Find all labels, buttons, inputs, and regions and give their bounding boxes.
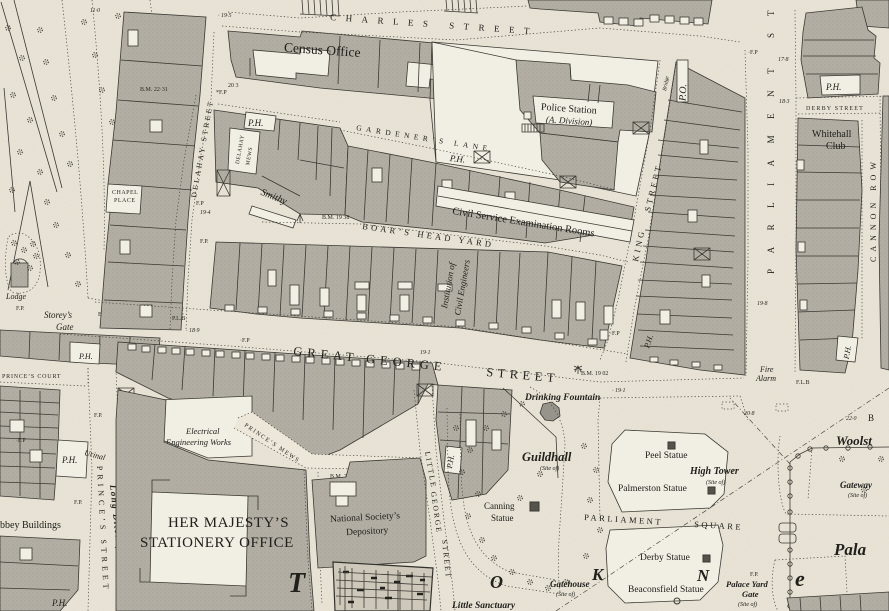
svg-text:Little Sanctuary: Little Sanctuary <box>451 601 516 611</box>
svg-text:P.H.: P.H. <box>247 118 263 128</box>
svg-text:19·1: 19·1 <box>420 350 431 356</box>
svg-text:P.H.: P.H. <box>825 82 841 92</box>
svg-text:19·8: 19·8 <box>757 301 768 307</box>
svg-text:Gatehouse: Gatehouse <box>550 579 590 589</box>
svg-text:B: B <box>868 413 874 423</box>
svg-text:Alarm: Alarm <box>755 374 776 383</box>
svg-text:STATIONERY OFFICE: STATIONERY OFFICE <box>140 535 294 551</box>
svg-text:Club: Club <box>826 141 845 152</box>
svg-text:F.P.: F.P. <box>16 306 25 312</box>
svg-text:11·0: 11·0 <box>90 8 100 14</box>
svg-text:Guildhall: Guildhall <box>522 450 572 464</box>
svg-text:Whitehall: Whitehall <box>812 129 852 140</box>
svg-text:B.M. 19 38: B.M. 19 38 <box>322 215 349 221</box>
svg-text:T: T <box>288 568 307 599</box>
svg-text:PRINCE’S COURT: PRINCE’S COURT <box>2 374 61 380</box>
svg-text:P.H.: P.H. <box>51 598 67 608</box>
svg-text:Statue: Statue <box>491 513 514 523</box>
svg-text:Canning: Canning <box>484 501 515 511</box>
svg-text:P.H.: P.H. <box>448 153 465 165</box>
svg-text:Drinking Fountain: Drinking Fountain <box>524 393 600 403</box>
svg-text:High Tower: High Tower <box>689 466 739 477</box>
svg-text:· 18·9: · 18·9 <box>186 328 200 334</box>
svg-text:·F.P: ·F.P <box>748 50 758 56</box>
svg-text:Storey’s: Storey’s <box>44 310 72 320</box>
svg-text:Palmerston Statue: Palmerston Statue <box>618 484 687 494</box>
svg-text:Gate: Gate <box>56 322 74 332</box>
svg-text:Derby Statue: Derby Statue <box>640 553 690 563</box>
svg-text:F.P.: F.P. <box>94 413 103 419</box>
svg-text:(Site of): (Site of) <box>706 479 725 486</box>
svg-text:B.M. 19 02: B.M. 19 02 <box>581 371 608 377</box>
svg-text:Lodge: Lodge <box>5 292 26 301</box>
svg-text:CHAPEL: CHAPEL <box>112 190 138 196</box>
svg-text:P.O.: P.O. <box>677 84 689 103</box>
svg-text:P.L.B: P.L.B <box>172 316 185 322</box>
svg-text:·F.P: ·F.P <box>610 331 620 337</box>
svg-text:Fire: Fire <box>759 365 774 374</box>
svg-text:O: O <box>490 572 503 592</box>
svg-text:Gate: Gate <box>742 589 759 599</box>
svg-text:DERBY STREET: DERBY STREET <box>806 106 864 112</box>
svg-text:·F.P: ·F.P <box>240 338 250 344</box>
svg-text:18·3: 18·3 <box>779 99 790 105</box>
svg-text:*F.P: *F.P <box>216 90 227 96</box>
svg-text:· 19·5: · 19·5 <box>218 13 232 19</box>
svg-text:F.P: F.P <box>196 201 204 207</box>
svg-text:20 3: 20 3 <box>228 83 239 89</box>
svg-text:HER MAJESTY’S: HER MAJESTY’S <box>168 515 289 531</box>
svg-text:CANNON ROW: CANNON ROW <box>869 157 878 262</box>
svg-text:(Site of): (Site of) <box>540 465 559 472</box>
svg-text:P.H.: P.H. <box>78 352 93 361</box>
svg-text:(Site of): (Site of) <box>738 601 757 608</box>
svg-text:K: K <box>591 565 605 584</box>
svg-text:F.P.: F.P. <box>750 572 759 578</box>
svg-text:F.L.B: F.L.B <box>796 380 810 386</box>
svg-text:Gateway: Gateway <box>840 480 873 490</box>
svg-text:20·8: 20·8 <box>744 411 755 417</box>
svg-text:PARLIAMENT: PARLIAMENT <box>766 52 776 274</box>
svg-text:·F.P: ·F.P <box>16 438 26 444</box>
svg-text:PLACE: PLACE <box>114 198 136 204</box>
svg-text:bbey Buildings: bbey Buildings <box>0 520 61 531</box>
svg-text:(Site of): (Site of) <box>556 591 575 598</box>
svg-text:17·8: 17·8 <box>778 57 789 63</box>
svg-text:Beaconsfield Statue: Beaconsfield Statue <box>628 584 704 595</box>
svg-text:19·4: 19·4 <box>200 209 211 216</box>
svg-text:Palace Yard: Palace Yard <box>726 579 769 589</box>
svg-text:(Site of): (Site of) <box>848 492 867 499</box>
svg-text:P.H.: P.H. <box>61 455 77 465</box>
svg-text:Electrical: Electrical <box>185 426 220 436</box>
svg-text:22·0: 22·0 <box>846 416 857 422</box>
svg-text:Woolst: Woolst <box>836 433 872 448</box>
svg-text:e: e <box>795 566 805 591</box>
svg-text:Peel Statue: Peel Statue <box>645 451 687 461</box>
svg-text:ST.: ST. <box>766 0 776 38</box>
svg-text:F.P.: F.P. <box>74 500 83 506</box>
svg-text:B.M. 22·31: B.M. 22·31 <box>140 87 168 93</box>
svg-text:N: N <box>696 566 710 585</box>
svg-text:F.P.: F.P. <box>200 239 209 245</box>
svg-text:· 19·1: · 19·1 <box>612 388 626 394</box>
svg-text:Engineering Works: Engineering Works <box>165 437 232 447</box>
